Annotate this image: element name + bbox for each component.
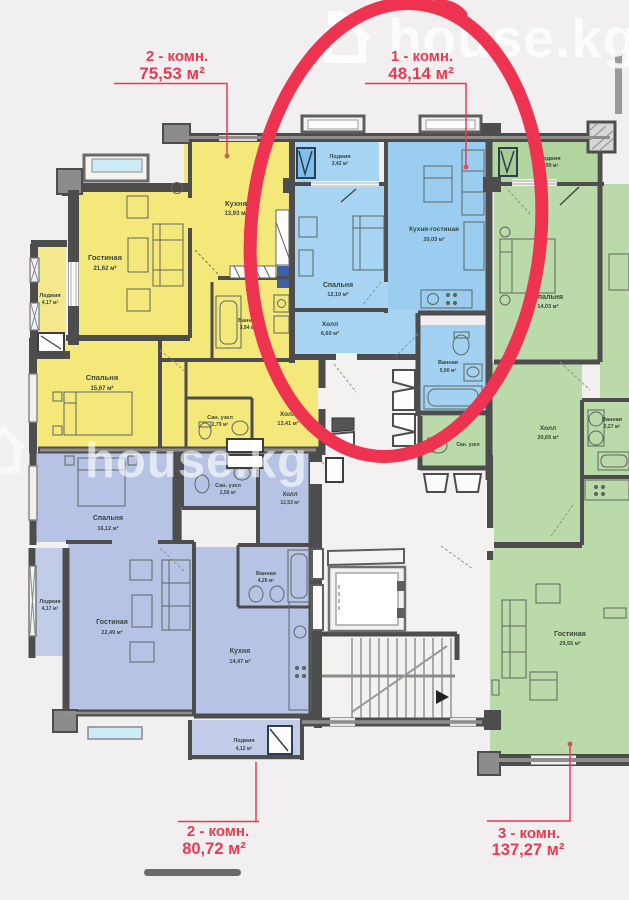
- svg-text:2 - комн.: 2 - комн.: [146, 48, 208, 65]
- svg-text:Кухня: Кухня: [230, 648, 250, 655]
- svg-text:Спальня: Спальня: [93, 515, 123, 522]
- svg-text:80,72 м²: 80,72 м²: [182, 840, 246, 858]
- svg-text:4,12 м²: 4,12 м²: [236, 746, 253, 752]
- svg-text:Спальня: Спальня: [86, 373, 118, 382]
- svg-text:4,26 м²: 4,26 м²: [258, 578, 275, 584]
- svg-text:Ванная: Ванная: [438, 360, 458, 366]
- svg-text:2,56 м²: 2,56 м²: [220, 490, 237, 496]
- svg-text:20,03 м²: 20,03 м²: [423, 236, 444, 243]
- svg-text:16,12 м²: 16,12 м²: [97, 525, 118, 532]
- svg-text:Спальня: Спальня: [323, 282, 353, 289]
- svg-text:15,67 м²: 15,67 м²: [90, 385, 113, 392]
- svg-text:1 - комн.: 1 - комн.: [391, 48, 453, 65]
- svg-text:Сан. узел: Сан. узел: [207, 415, 233, 421]
- svg-text:2,79 м²: 2,79 м²: [212, 422, 229, 428]
- svg-text:137,27 м²: 137,27 м²: [492, 841, 565, 859]
- svg-text:Лоджия: Лоджия: [329, 154, 350, 160]
- svg-text:2 - комн.: 2 - комн.: [187, 823, 249, 840]
- svg-text:14,03 м²: 14,03 м²: [537, 303, 558, 310]
- svg-text:13,93 м²: 13,93 м²: [224, 210, 247, 217]
- svg-text:Лоджия: Лоджия: [39, 599, 60, 605]
- svg-text:75,53 м²: 75,53 м²: [139, 64, 205, 83]
- svg-text:22,49 м²: 22,49 м²: [101, 629, 122, 636]
- svg-text:Холл: Холл: [540, 425, 556, 432]
- svg-text:13,41 м²: 13,41 м²: [277, 420, 298, 427]
- svg-text:Гостиная: Гостиная: [88, 253, 122, 262]
- svg-text:4,17 м²: 4,17 м²: [42, 606, 59, 612]
- svg-text:house.kg: house.kg: [85, 434, 308, 488]
- svg-text:5,90 м²: 5,90 м²: [440, 368, 457, 374]
- svg-text:12,53 м²: 12,53 м²: [280, 500, 300, 506]
- svg-text:3,42 м²: 3,42 м²: [332, 161, 349, 167]
- svg-text:Гостиная: Гостиная: [96, 619, 128, 626]
- svg-text:Кухня: Кухня: [225, 199, 247, 208]
- svg-text:Холл: Холл: [322, 321, 338, 328]
- svg-text:29,55 м²: 29,55 м²: [559, 640, 580, 647]
- svg-text:4,17 м²: 4,17 м²: [42, 300, 59, 306]
- svg-text:Лоджия: Лоджия: [39, 293, 60, 299]
- svg-text:Холл: Холл: [282, 492, 297, 498]
- svg-text:12,10 м²: 12,10 м²: [327, 291, 348, 298]
- svg-text:3 - комн.: 3 - комн.: [498, 825, 560, 842]
- svg-text:Лоджия: Лоджия: [233, 738, 254, 744]
- svg-text:Ванная: Ванная: [256, 571, 276, 577]
- svg-text:21,62 м²: 21,62 м²: [93, 265, 116, 272]
- svg-text:14,47 м²: 14,47 м²: [229, 658, 250, 665]
- svg-text:48,14 м²: 48,14 м²: [388, 64, 454, 83]
- svg-text:20,65 м²: 20,65 м²: [537, 434, 558, 441]
- svg-text:Гостиная: Гостиная: [554, 631, 586, 638]
- svg-text:Ванная: Ванная: [602, 417, 622, 423]
- svg-text:Кухня-гостиная: Кухня-гостиная: [409, 226, 459, 233]
- svg-text:Сан. узел: Сан. узел: [456, 442, 479, 448]
- svg-text:5,27 м²: 5,27 м²: [604, 424, 621, 430]
- svg-text:6,60 м²: 6,60 м²: [321, 330, 339, 337]
